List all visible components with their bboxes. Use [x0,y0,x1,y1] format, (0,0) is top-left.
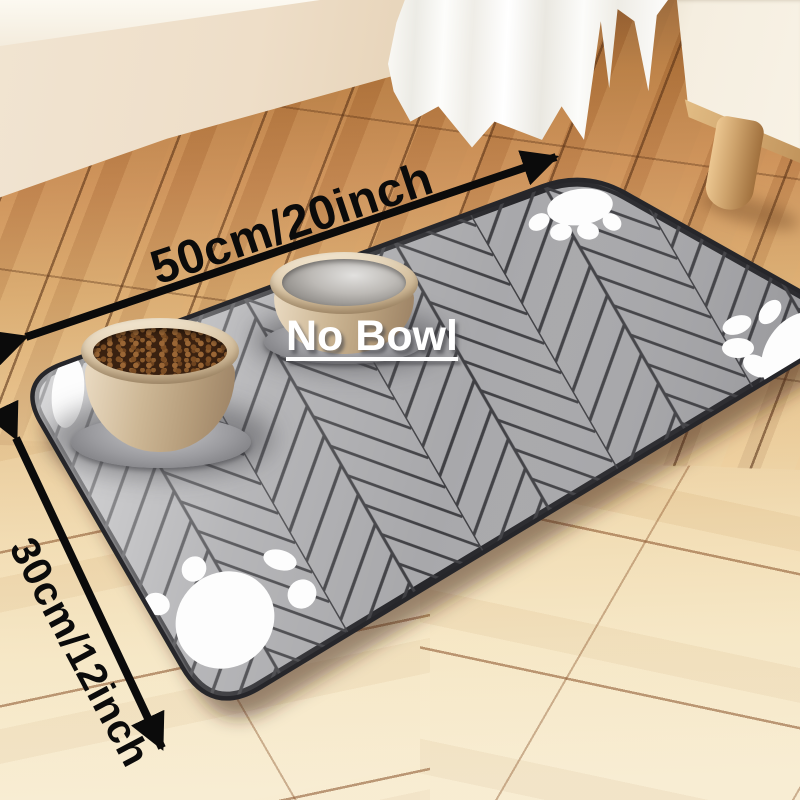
floor-planks-lower-right [420,420,800,800]
scene-container: No Bowl 50cm/20inch 30cm/12inch [0,0,800,800]
no-bowl-label: No Bowl [252,308,492,364]
kibble-food [93,328,227,375]
